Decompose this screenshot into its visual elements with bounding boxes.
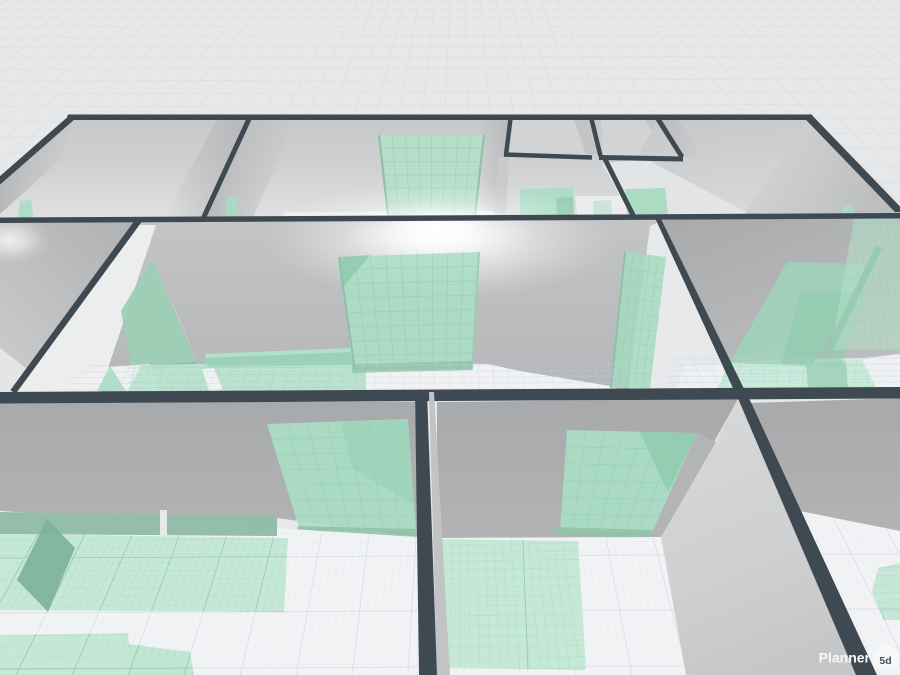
svg-text:5d: 5d [879, 655, 891, 667]
svg-text:Planner: Planner [819, 650, 871, 666]
